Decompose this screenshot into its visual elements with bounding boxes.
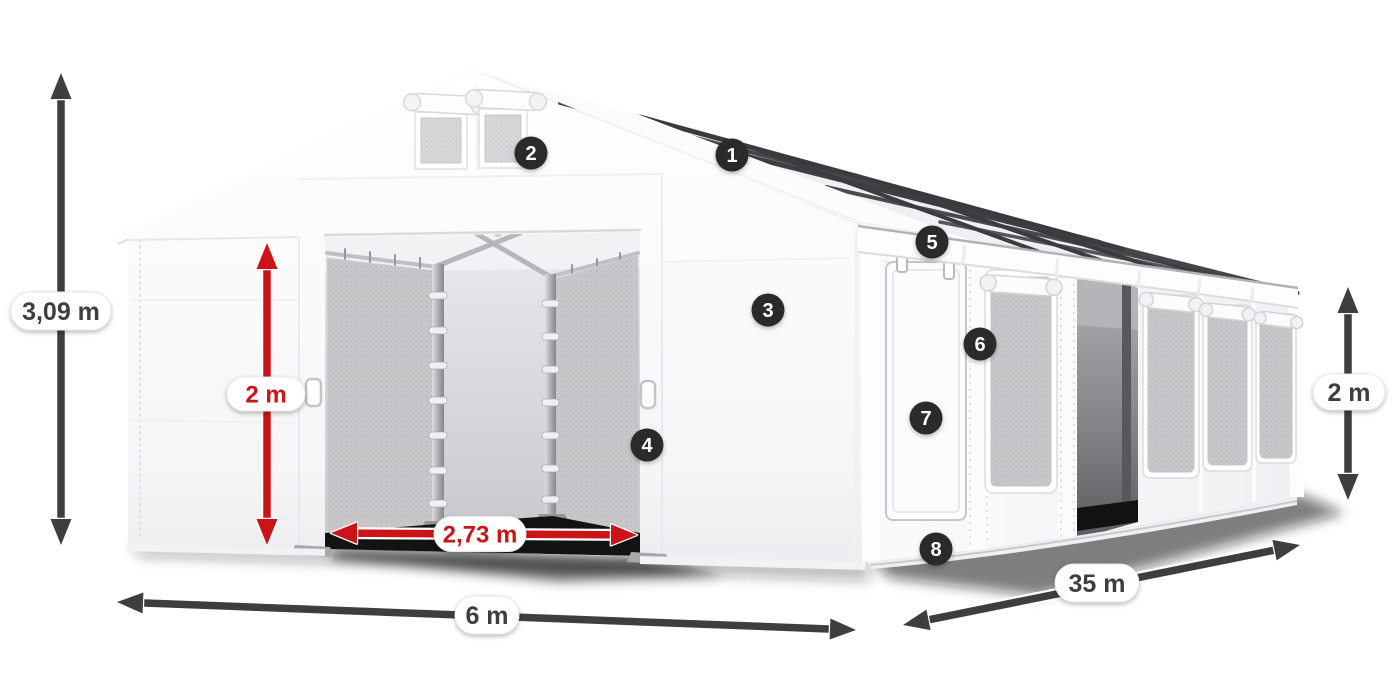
marker-number: 8 bbox=[930, 539, 941, 561]
door-handle-left bbox=[306, 379, 321, 406]
arrowhead-end bbox=[1338, 474, 1359, 500]
part-marker-5: 5 bbox=[916, 226, 949, 259]
dimension-label: 35 m bbox=[1069, 570, 1126, 598]
marker-number: 2 bbox=[525, 143, 536, 165]
diagram-canvas: 3,09 m2 m2,73 m6 m35 m2 m12345678 bbox=[0, 0, 1400, 700]
marker-number: 7 bbox=[920, 408, 931, 430]
dimension-label: 6 m bbox=[465, 602, 508, 630]
side-window-1 bbox=[980, 270, 1063, 493]
marker-number: 4 bbox=[641, 435, 653, 457]
side-window-4 bbox=[1253, 310, 1303, 463]
side-door bbox=[886, 252, 966, 520]
arrowhead-end bbox=[51, 519, 72, 545]
dimension-label: 3,09 m bbox=[22, 298, 100, 326]
tent-product-diagram: 3,09 m2 m2,73 m6 m35 m2 m12345678 bbox=[0, 0, 1400, 700]
arrowhead-start bbox=[51, 73, 72, 99]
part-marker-3: 3 bbox=[752, 294, 785, 327]
part-marker-6: 6 bbox=[964, 328, 997, 361]
dimension-label: 2 m bbox=[1327, 379, 1370, 407]
arrowhead-start bbox=[117, 592, 144, 614]
dimension-label: 2 m bbox=[245, 382, 286, 409]
mesh-door-panel-right bbox=[551, 255, 640, 545]
door-handle-right bbox=[641, 381, 655, 408]
marker-number: 1 bbox=[726, 145, 737, 167]
part-marker-4: 4 bbox=[631, 429, 664, 462]
arrowhead-end bbox=[1272, 535, 1302, 561]
side-window-2 bbox=[1138, 292, 1203, 478]
front-opening-interior bbox=[325, 229, 640, 556]
marker-number: 6 bbox=[974, 334, 985, 356]
dimension-front-width: 6 m bbox=[117, 592, 857, 641]
arrowhead-start bbox=[901, 610, 931, 636]
part-marker-7: 7 bbox=[910, 402, 943, 435]
arrowhead-start bbox=[1338, 287, 1359, 313]
marker-number: 3 bbox=[762, 300, 773, 322]
open-side-bay bbox=[1077, 267, 1138, 539]
corner-post bbox=[860, 233, 880, 562]
marker-number: 5 bbox=[926, 232, 937, 254]
mesh-door-panel-left bbox=[327, 258, 437, 535]
dimension-side-height: 2 m bbox=[1313, 287, 1385, 500]
part-marker-1: 1 bbox=[716, 139, 749, 172]
arrowhead-end bbox=[830, 619, 857, 641]
dimension-label: 2,73 m bbox=[443, 522, 518, 549]
part-marker-8: 8 bbox=[920, 533, 953, 566]
dimension-total-height: 3,09 m bbox=[11, 73, 111, 545]
part-marker-2: 2 bbox=[515, 137, 548, 170]
side-window-3 bbox=[1199, 302, 1256, 471]
